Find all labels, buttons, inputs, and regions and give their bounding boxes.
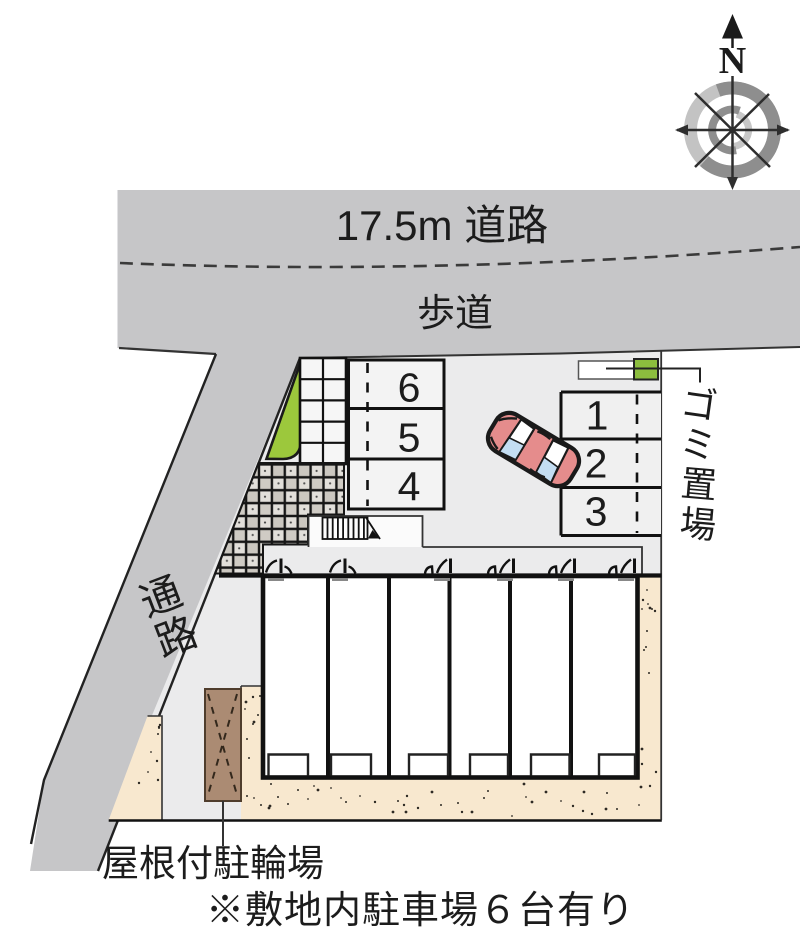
svg-text:屋根付駐輪場: 屋根付駐輪場 [102, 843, 324, 884]
svg-text:2: 2 [585, 441, 608, 487]
svg-text:6: 6 [398, 365, 421, 411]
svg-text:17.5m 道路: 17.5m 道路 [336, 202, 548, 249]
svg-text:3: 3 [585, 489, 608, 535]
svg-text:歩道: 歩道 [417, 293, 493, 335]
svg-text:場: 場 [678, 503, 717, 547]
svg-text:置: 置 [679, 463, 718, 507]
svg-text:ミ: ミ [677, 422, 718, 468]
svg-text:※敷地内駐車場６台有り: ※敷地内駐車場６台有り [206, 890, 634, 932]
svg-text:ゴ: ゴ [678, 382, 719, 428]
svg-text:4: 4 [398, 464, 421, 510]
svg-text:5: 5 [398, 415, 421, 461]
svg-text:1: 1 [586, 393, 609, 439]
svg-text:N: N [719, 40, 746, 82]
